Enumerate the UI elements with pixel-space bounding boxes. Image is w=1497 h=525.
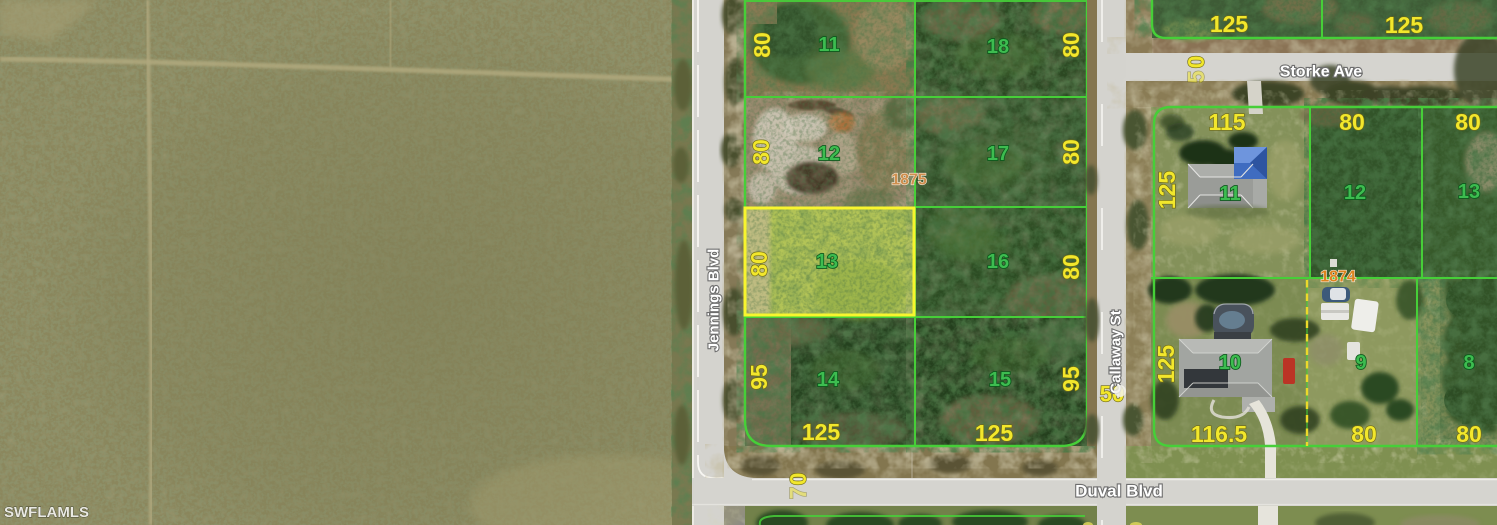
svg-text:13: 13 <box>816 251 838 273</box>
svg-text:80: 80 <box>1058 32 1084 58</box>
svg-text:80: 80 <box>1455 109 1481 135</box>
svg-text:80: 80 <box>749 32 775 58</box>
svg-text:Jennings Blvd: Jennings Blvd <box>706 249 723 352</box>
svg-text:SWFLAMLS: SWFLAMLS <box>4 504 89 521</box>
svg-text:116.5: 116.5 <box>1191 421 1247 447</box>
svg-text:1874: 1874 <box>1320 269 1356 286</box>
svg-text:125: 125 <box>1210 11 1249 37</box>
svg-text:13: 13 <box>1458 181 1480 203</box>
svg-text:80: 80 <box>1339 109 1365 135</box>
svg-text:95: 95 <box>1058 366 1084 392</box>
svg-text:18: 18 <box>987 36 1009 58</box>
svg-text:15: 15 <box>989 369 1011 391</box>
svg-text:0: 0 <box>1183 56 1209 69</box>
svg-text:0: 0 <box>785 473 811 486</box>
svg-text:125: 125 <box>1154 171 1180 210</box>
svg-text:Callaway St: Callaway St <box>1108 310 1125 393</box>
svg-text:12: 12 <box>1344 182 1366 204</box>
svg-text:11: 11 <box>1219 183 1240 205</box>
svg-text:14: 14 <box>817 369 840 391</box>
svg-text:9: 9 <box>1355 352 1366 374</box>
svg-text:95: 95 <box>746 364 772 390</box>
svg-text:Storke Ave: Storke Ave <box>1280 64 1363 81</box>
svg-text:1875: 1875 <box>891 172 927 189</box>
svg-text:7: 7 <box>785 487 811 500</box>
svg-text:80: 80 <box>748 139 774 165</box>
svg-text:11: 11 <box>818 34 839 56</box>
svg-text:125: 125 <box>1153 345 1179 384</box>
svg-text:125: 125 <box>802 419 841 445</box>
svg-text:80: 80 <box>1058 254 1084 280</box>
svg-text:80: 80 <box>1058 139 1084 165</box>
svg-text:125: 125 <box>975 420 1014 446</box>
svg-text:16: 16 <box>987 251 1009 273</box>
svg-text:115: 115 <box>1208 109 1245 135</box>
svg-text:17: 17 <box>987 143 1009 165</box>
svg-text:80: 80 <box>746 251 772 277</box>
svg-text:8: 8 <box>1463 352 1474 374</box>
svg-text:125: 125 <box>1385 12 1424 38</box>
svg-text:80: 80 <box>1456 421 1482 447</box>
svg-text:10: 10 <box>1219 352 1241 374</box>
svg-text:80: 80 <box>1351 421 1377 447</box>
svg-text:12: 12 <box>818 143 840 165</box>
svg-text:5: 5 <box>1183 70 1209 83</box>
svg-text:Duval Blvd: Duval Blvd <box>1075 482 1163 501</box>
